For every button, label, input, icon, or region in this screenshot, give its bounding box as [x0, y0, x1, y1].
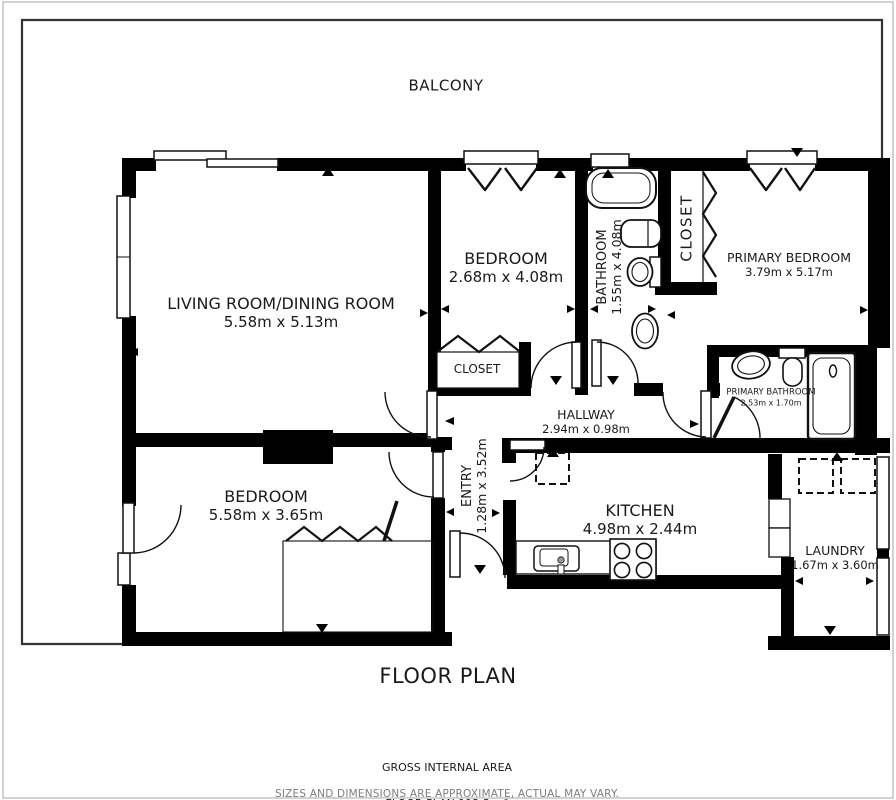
balcony-door-arc	[134, 505, 181, 553]
room-name: BATHROOM	[595, 219, 610, 314]
closet-door-leaf	[384, 501, 397, 541]
room-name: HALLWAY	[542, 408, 630, 423]
room-dims: 2.68m x 4.08m	[449, 269, 563, 286]
floor-plan-canvas: BALCONY LIVING ROOM/DINING ROOM 5.58m x …	[0, 0, 896, 800]
room-label-bedroom-top: BEDROOM 2.68m x 4.08m	[449, 250, 563, 286]
living-door-leaf	[427, 391, 437, 439]
appliance-box	[799, 459, 833, 493]
bedroom-top-window	[464, 151, 538, 164]
primary-toilet-icon	[779, 348, 805, 386]
room-dims: 2.94m x 0.98m	[542, 423, 630, 436]
bedroom-bottom-door-leaf	[433, 452, 443, 498]
balcony-label: BALCONY	[408, 77, 483, 94]
room-name: LIVING ROOM/DINING ROOM	[167, 295, 395, 314]
bedroom-bottom-door-arc	[389, 452, 434, 497]
balcony-door-leaf	[123, 503, 134, 553]
room-label-entry: ENTRY 1.28m x 3.52m	[460, 438, 490, 533]
appliance-box	[536, 453, 569, 484]
bedroom-bottom-closet-box	[283, 541, 433, 632]
room-dims: 4.98m x 2.44m	[583, 521, 697, 538]
appliance-box	[841, 459, 875, 493]
bedroom-door-leaf	[572, 342, 581, 388]
accordion-door	[286, 527, 392, 541]
bedroom-window	[118, 553, 130, 585]
appliance-boxes	[536, 453, 875, 493]
primary-door-leaf	[701, 391, 711, 438]
bathroom-door-leaf	[592, 340, 601, 386]
gross-internal-area-line: GROSS INTERNAL AREA	[341, 762, 553, 774]
room-name: BEDROOM	[449, 250, 563, 269]
room-label-bedroom-bottom: BEDROOM 5.58m x 3.65m	[209, 488, 323, 524]
kitchen-sink-icon	[534, 546, 579, 574]
room-label-bathroom: BATHROOM 1.55m x 4.08m	[595, 219, 625, 314]
room-name: PRIMARY BEDROOM	[727, 251, 851, 266]
sliding-door-panel	[207, 159, 278, 167]
living-door-arc	[385, 392, 431, 437]
room-dims: 1.67m x 3.60m	[791, 559, 879, 572]
room-dims: 1.55m x 4.08m	[610, 219, 625, 314]
primary-window	[747, 151, 817, 164]
room-label-hallway: HALLWAY 2.94m x 0.98m	[542, 408, 630, 436]
room-label-primary-bathroom: PRIMARY BATHROOM 2.53m x 1.70m	[726, 388, 815, 407]
kitchen-door-leaf	[510, 440, 545, 450]
stove-icon	[610, 539, 656, 580]
room-dims: 5.58m x 5.13m	[167, 314, 395, 331]
room-name: BEDROOM	[209, 488, 323, 507]
room-dims: 1.28m x 3.52m	[475, 438, 490, 533]
room-label-living: LIVING ROOM/DINING ROOM 5.58m x 5.13m	[167, 295, 395, 331]
disclaimer-text: SIZES AND DIMENSIONS ARE APPROXIMATE, AC…	[275, 788, 619, 800]
accordion-door	[703, 172, 716, 277]
plan-title: FLOOR PLAN	[379, 664, 516, 688]
laundry-cabinet	[769, 499, 790, 557]
primary-door-arc	[663, 392, 706, 437]
front-door-arc	[460, 533, 505, 578]
room-name: KITCHEN	[583, 502, 697, 521]
room-label-closet-primary: CLOSET	[678, 194, 695, 261]
laundry-window	[877, 457, 889, 549]
bidet-icon	[632, 314, 658, 349]
accordion-door	[437, 336, 519, 352]
room-label-closet-bedroom: CLOSET	[454, 363, 501, 377]
room-dims: 3.79m x 5.17m	[727, 266, 851, 279]
room-name: ENTRY	[460, 438, 475, 533]
toilet-icon	[628, 257, 662, 287]
room-name: PRIMARY BATHROOM	[726, 388, 815, 398]
room-dims: 2.53m x 1.70m	[726, 398, 815, 407]
bathroom-window	[591, 154, 629, 167]
room-label-kitchen: KITCHEN 4.98m x 2.44m	[583, 502, 697, 538]
front-door-leaf	[450, 531, 460, 577]
room-label-primary-bedroom: PRIMARY BEDROOM 3.79m x 5.17m	[727, 251, 851, 279]
bathroom-sink-icon	[621, 220, 661, 247]
bathtub-icon	[586, 168, 656, 208]
room-label-laundry: LAUNDRY 1.67m x 3.60m	[791, 544, 879, 572]
room-dims: 5.58m x 3.65m	[209, 507, 323, 524]
room-name: LAUNDRY	[791, 544, 879, 559]
